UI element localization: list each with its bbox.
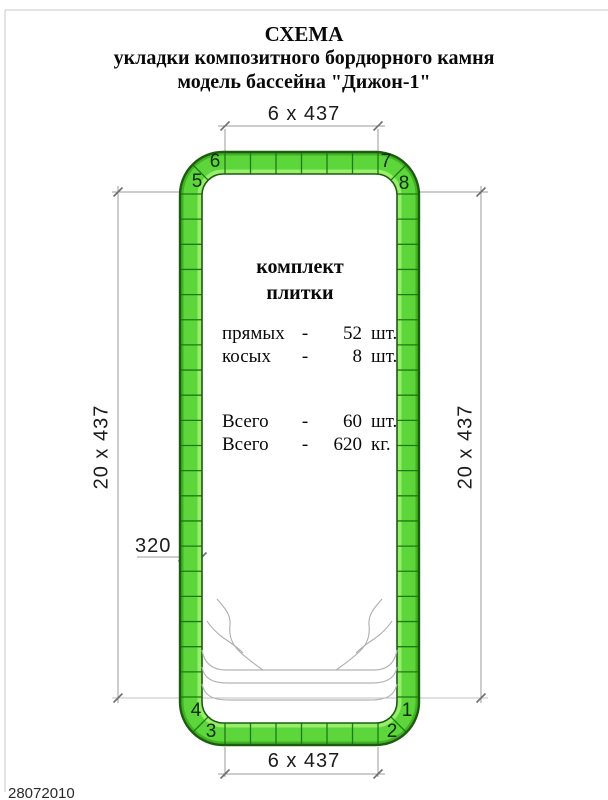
corner-tile-number-3: 3 — [206, 721, 217, 743]
kit-heading-line1: комплект — [202, 254, 398, 280]
kit-row-diagonal: косых - 8 шт. — [222, 345, 412, 368]
kit-row-unit: шт. — [362, 322, 412, 345]
dimension-label-right: 20 x 437 — [455, 405, 478, 490]
kit-list: прямых - 52 шт. косых - 8 шт. Всего - 60… — [222, 322, 412, 456]
kit-row-name: Всего — [222, 410, 292, 433]
pool-shell-contours — [207, 599, 392, 670]
date-stamp: 28072010 — [8, 785, 75, 800]
kit-row-dash: - — [292, 322, 318, 345]
corner-tile-number-8: 8 — [399, 173, 410, 195]
corner-tile-number-6: 6 — [210, 151, 221, 173]
kit-row-value: 620 — [318, 433, 362, 456]
kit-row-unit: кг. — [362, 433, 412, 456]
kit-row-value: 60 — [318, 410, 362, 433]
kit-heading-line2: плитки — [202, 280, 398, 306]
kit-row-name: Всего — [222, 433, 292, 456]
page-subtitle-line1: укладки композитного бордюрного камня — [0, 47, 608, 70]
kit-row-value: 52 — [318, 322, 362, 345]
kit-row-name: прямых — [222, 322, 292, 345]
document-page: СХЕМА укладки композитного бордюрного ка… — [0, 0, 608, 800]
corner-tile-number-2: 2 — [387, 721, 398, 743]
page-title: СХЕМА — [0, 22, 608, 47]
dimension-label-bottom: 6 x 437 — [0, 750, 608, 773]
corner-tile-number-5: 5 — [192, 171, 203, 193]
kit-heading: комплект плитки — [202, 254, 398, 306]
dimension-label-top: 6 x 437 — [0, 103, 608, 126]
kit-row-value: 8 — [318, 345, 362, 368]
kit-row-unit: шт. — [362, 345, 412, 368]
kit-row-unit: шт. — [362, 410, 412, 433]
kit-row-name: косых — [222, 345, 292, 368]
corner-tile-number-7: 7 — [381, 151, 392, 173]
kit-row-dash: - — [292, 410, 318, 433]
corner-tile-number-4: 4 — [191, 700, 202, 722]
page-subtitle-line2: модель бассейна "Дижон-1" — [0, 71, 608, 94]
kit-row-total-count: Всего - 60 шт. — [222, 410, 412, 433]
kit-row-total-weight: Всего - 620 кг. — [222, 433, 412, 456]
kit-row-dash: - — [292, 345, 318, 368]
pool-steps-curves — [202, 650, 397, 700]
kit-row-dash: - — [292, 433, 318, 456]
dimension-label-tile-width: 320 — [135, 535, 171, 558]
kit-row-straight: прямых - 52 шт. — [222, 322, 412, 345]
dimension-label-left: 20 x 437 — [91, 405, 114, 490]
corner-tile-number-1: 1 — [402, 700, 413, 722]
